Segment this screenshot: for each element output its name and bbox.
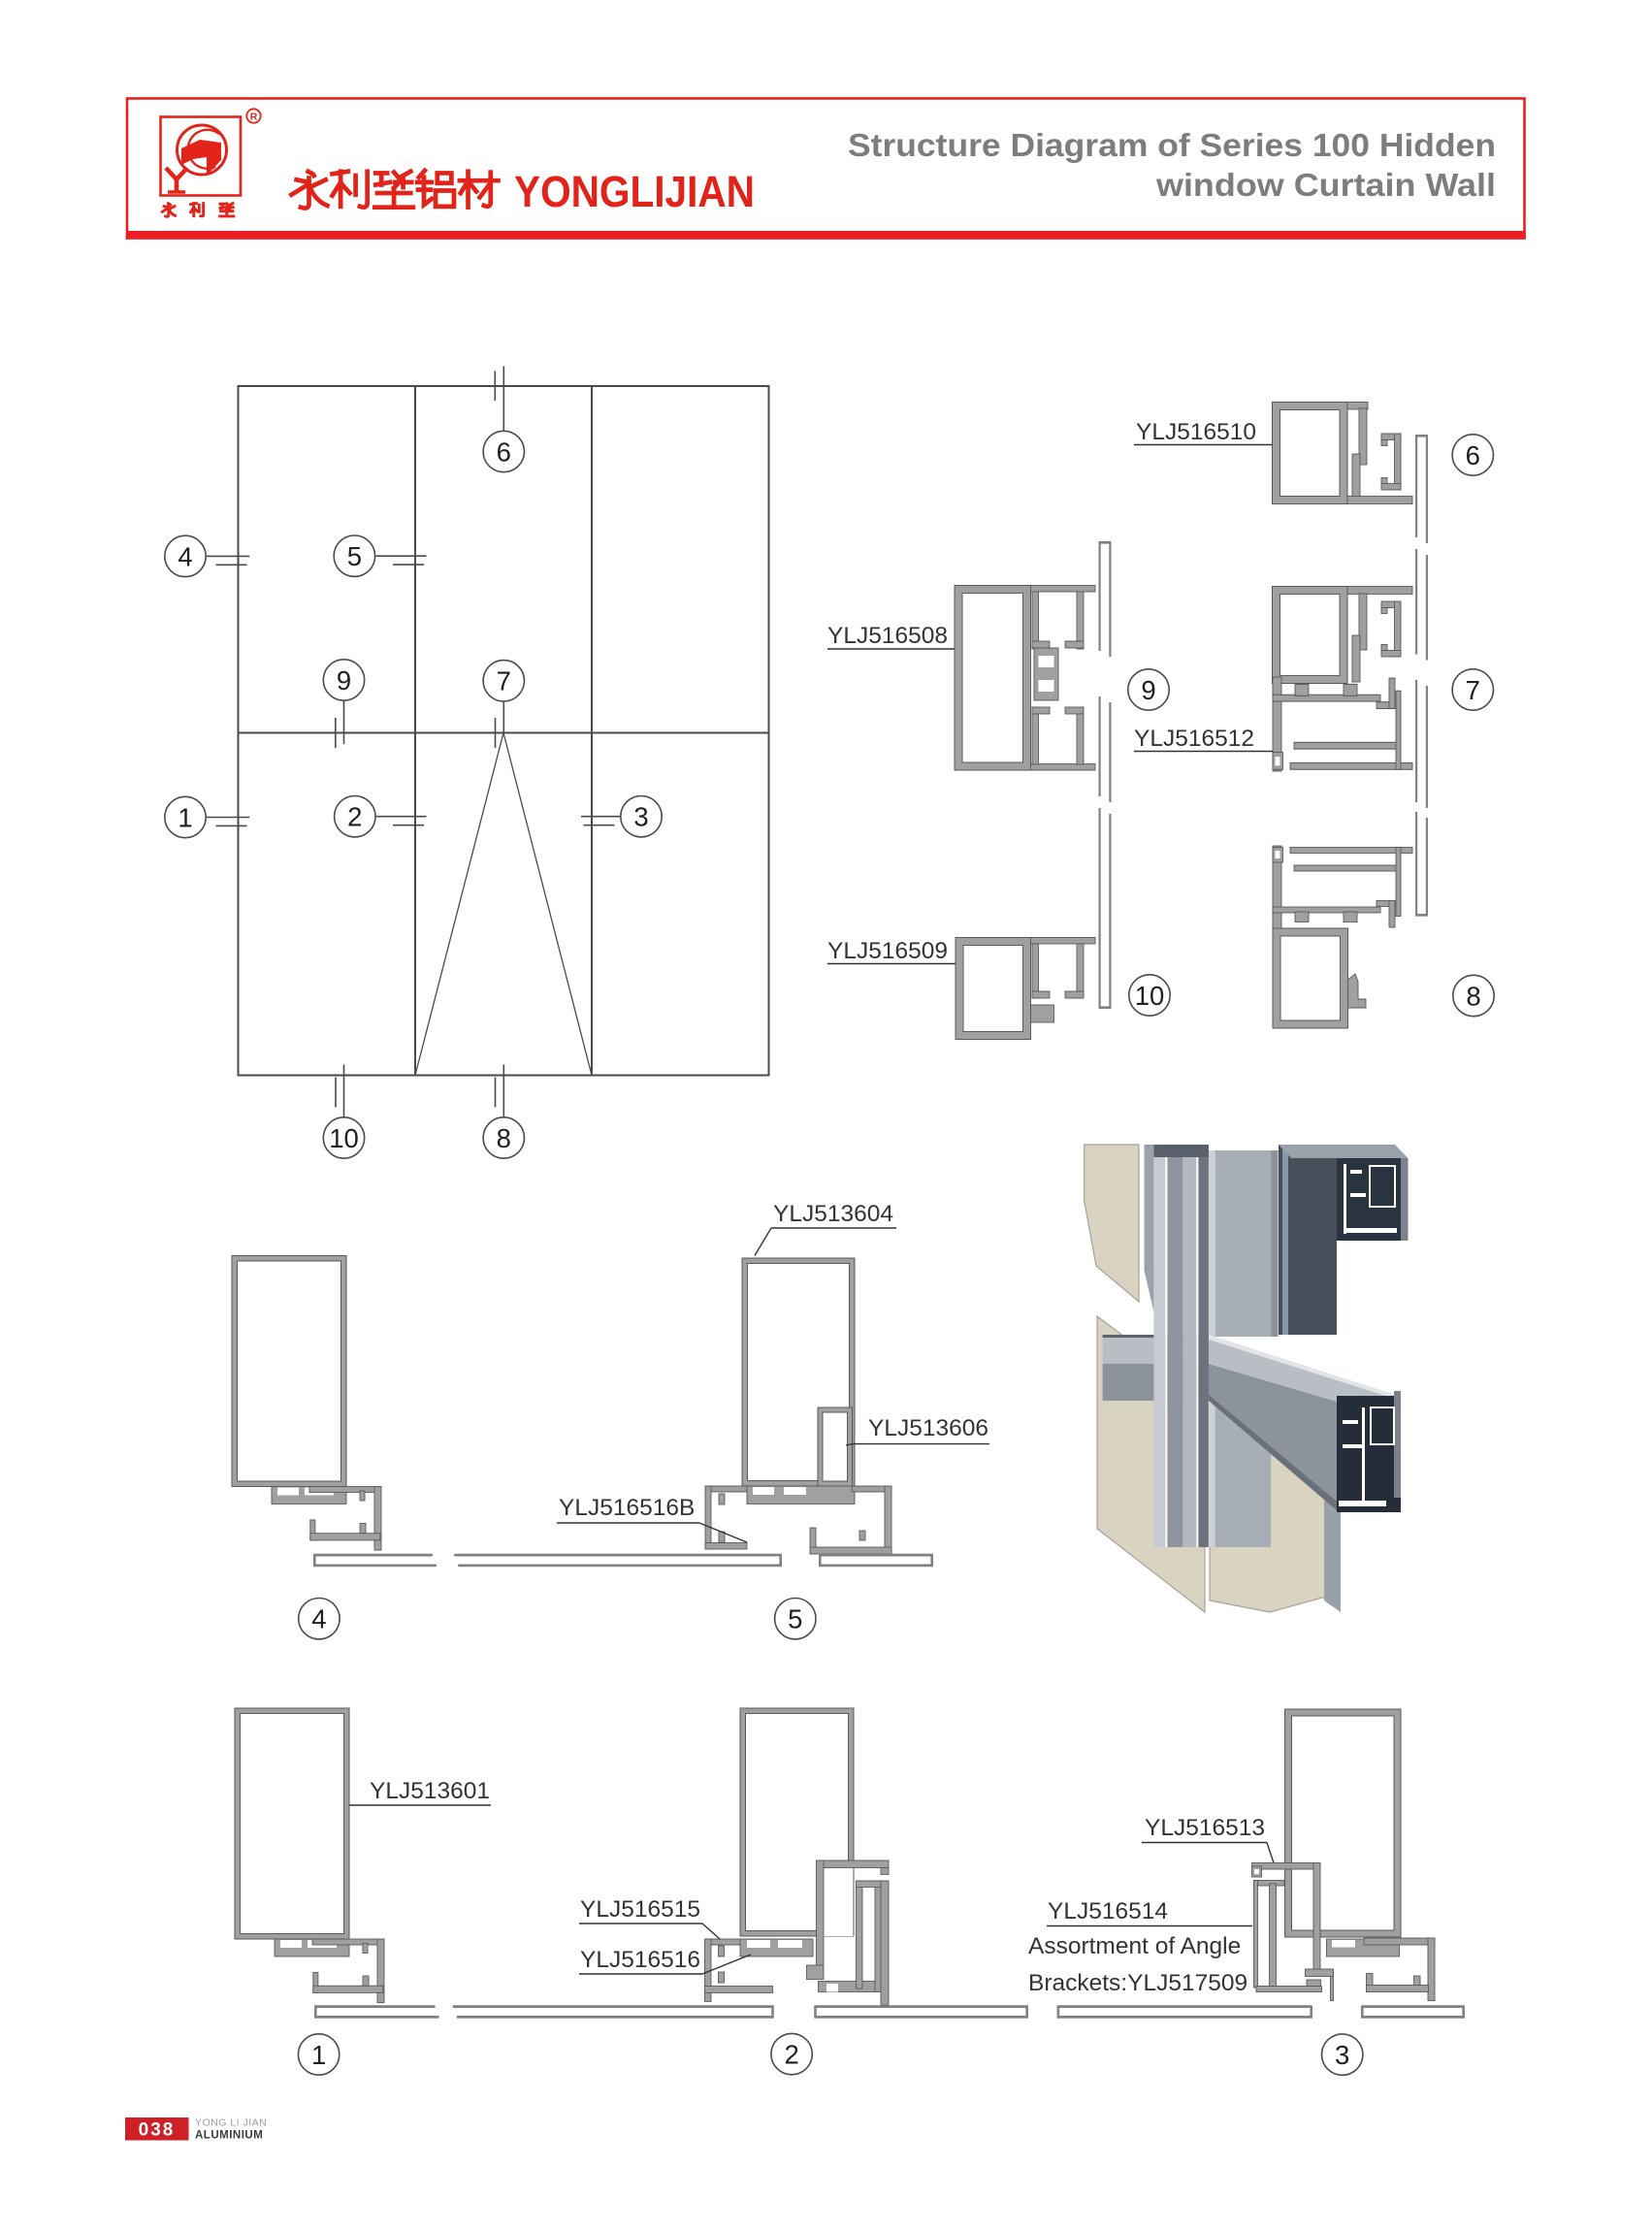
svg-text:YLJ516513: YLJ516513 [1145, 1815, 1265, 1841]
svg-text:YLJ513606: YLJ513606 [868, 1415, 988, 1441]
svg-text:1: 1 [178, 802, 192, 832]
svg-text:6: 6 [1466, 440, 1480, 470]
svg-text:YLJ513604: YLJ513604 [773, 1201, 893, 1227]
svg-text:YLJ516510: YLJ516510 [1136, 419, 1256, 445]
svg-text:8: 8 [1466, 981, 1480, 1011]
svg-text:6: 6 [497, 436, 511, 467]
svg-text:YLJ513601: YLJ513601 [370, 1778, 490, 1804]
svg-text:YLJ516516: YLJ516516 [580, 1947, 700, 1973]
svg-text:038: 038 [139, 2120, 176, 2141]
svg-text:YLJ516515: YLJ516515 [580, 1896, 700, 1923]
svg-text:YLJ516509: YLJ516509 [827, 938, 948, 964]
svg-text:9: 9 [337, 665, 351, 695]
svg-text:YONG LI JIAN: YONG LI JIAN [195, 2118, 267, 2129]
svg-text:YLJ516512: YLJ516512 [1134, 726, 1254, 752]
svg-text:YLJ516516B: YLJ516516B [559, 1495, 695, 1521]
svg-text:4: 4 [311, 1604, 326, 1634]
svg-text:7: 7 [497, 666, 511, 696]
svg-text:1: 1 [311, 2040, 326, 2070]
svg-text:ALUMINIUM: ALUMINIUM [195, 2130, 263, 2142]
svg-text:5: 5 [347, 541, 362, 571]
svg-text:2: 2 [347, 802, 362, 832]
svg-text:10: 10 [329, 1123, 359, 1153]
svg-text:Brackets:YLJ517509: Brackets:YLJ517509 [1028, 1970, 1247, 1996]
svg-text:8: 8 [497, 1123, 511, 1153]
svg-text:5: 5 [788, 1604, 802, 1634]
svg-text:3: 3 [633, 802, 648, 832]
svg-text:YONGLIJIAN: YONGLIJIAN [514, 167, 755, 216]
svg-text:YLJ516508: YLJ516508 [827, 623, 948, 649]
svg-text:2: 2 [784, 2040, 798, 2070]
svg-text:Assortment of Angle: Assortment of Angle [1028, 1933, 1241, 1959]
svg-text:10: 10 [1135, 981, 1165, 1011]
svg-text:9: 9 [1141, 675, 1155, 705]
svg-text:3: 3 [1335, 2040, 1349, 2070]
svg-text:window Curtain Wall: window Curtain Wall [1155, 167, 1496, 203]
svg-text:YLJ516514: YLJ516514 [1048, 1898, 1168, 1924]
svg-text:R: R [250, 112, 258, 123]
svg-text:7: 7 [1466, 675, 1480, 705]
svg-text:4: 4 [178, 541, 192, 571]
svg-text:Structure Diagram of Series 10: Structure Diagram of Series 100 Hidden [848, 127, 1496, 163]
